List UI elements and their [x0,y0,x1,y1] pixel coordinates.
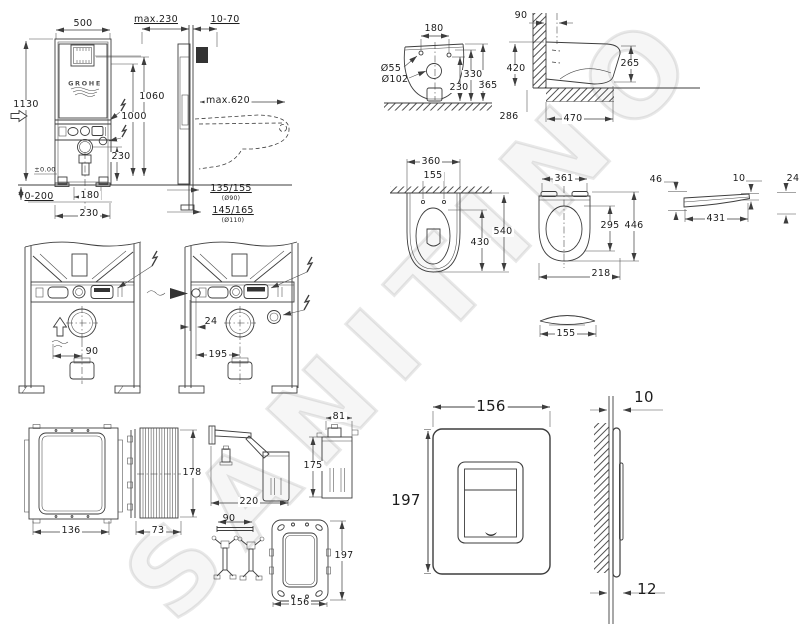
label-plate-12: 12 [637,582,657,598]
label-wc-side-90: 90 [515,11,528,21]
label-wc-hole-spacing: 180 [424,24,443,34]
label-wc-side-470: 470 [562,114,584,124]
label-bracket-220: 220 [238,497,260,507]
label-pipe-d110: (Ø110) [222,218,245,224]
label-seat-361: 361 [553,174,575,184]
label-seat-446: 446 [623,221,645,231]
label-plate-156: 156 [475,399,508,415]
label-drain-offset-2: 230 [78,209,100,219]
label-drain-height: 230 [110,152,132,162]
label-lid-24: 24 [787,174,800,184]
label-lid-46: 46 [650,175,663,185]
label-wc-top-430: 430 [469,238,491,248]
label-wc-top-540: 540 [492,227,514,237]
label-wc-outlet-dia: Ø102 [382,75,409,85]
label-wc-height-365: 365 [477,81,499,91]
label-frame-a-90: 90 [84,347,100,357]
label-actuator-height: 1060 [138,92,166,102]
label-wc-height-230: 230 [448,83,470,93]
label-pipe-145-165: 145/165 [212,206,254,216]
label-plate-197: 197 [390,493,423,509]
technical-drawing-page: SANITINO [0,0,804,630]
label-wc-inlet-dia: Ø55 [381,64,401,74]
label-wc-side-286: 286 [499,112,518,122]
label-lid-10: 10 [733,174,746,184]
label-wc-top-155: 155 [422,171,444,181]
label-mount-frame-197: 197 [333,551,355,561]
label-box-178: 178 [181,468,203,478]
label-adjust-range: 0-200 [24,192,53,202]
label-height-1000: 1000 [120,112,148,122]
label-frame-height: 1130 [12,100,40,110]
label-seat-218: 218 [590,269,612,279]
label-wc-top-360: 360 [420,157,442,167]
label-wc-side-265: 265 [619,59,641,69]
label-pipe-135-155: 135/155 [210,184,252,194]
label-box-73: 73 [150,526,166,536]
label-seat-295: 295 [599,221,621,231]
label-floor-level: ±0.00 [34,167,55,174]
label-lid-431: 431 [705,214,727,224]
label-frame-b-195: 195 [207,350,229,360]
label-pipe-d90: (Ø90) [222,196,241,202]
label-rod-90: 90 [223,514,236,524]
label-box-136: 136 [60,526,82,536]
label-frame-b-24: 24 [205,317,218,327]
label-grohe-logo: GROHE [68,81,102,88]
dimension-labels-layer: 5001130max.23010-7010601000max.620230±0.… [0,0,804,630]
label-outlet-reach: max.620 [205,96,252,106]
label-dome-155: 155 [555,329,577,339]
label-plate-10: 10 [634,390,654,406]
label-wall-gap: 10-70 [210,15,239,25]
label-drain-offset: 180 [79,191,101,201]
label-mount-frame-156: 156 [289,598,311,608]
label-wc-height-330: 330 [462,70,484,80]
label-wc-side-420: 420 [505,64,527,74]
label-frame-depth: max.230 [134,15,178,25]
label-container-175: 175 [302,461,324,471]
label-container-81: 81 [331,412,347,422]
label-frame-width: 500 [72,19,94,29]
